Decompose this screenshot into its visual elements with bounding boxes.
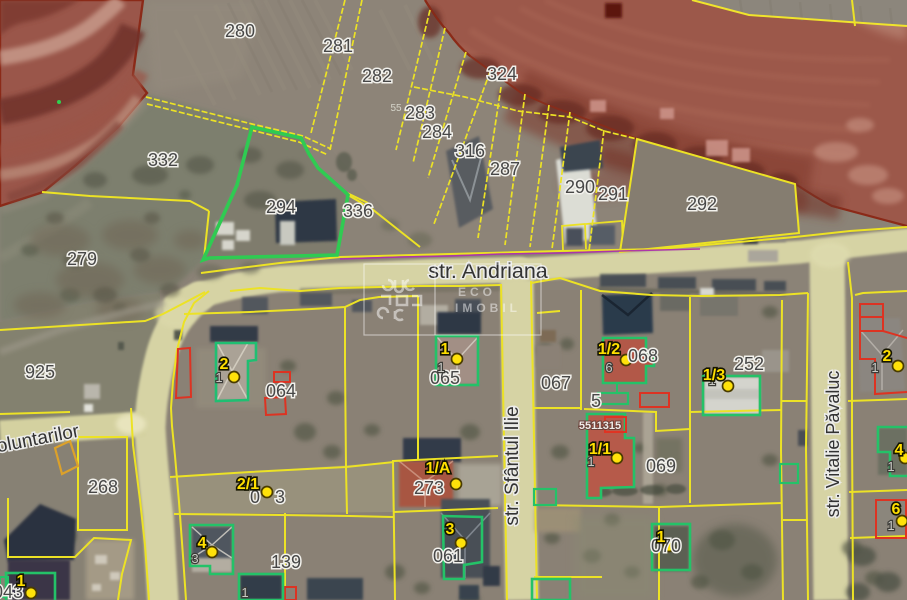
svg-text:069: 069 — [646, 456, 676, 476]
svg-text:55: 55 — [390, 103, 402, 114]
svg-text:1: 1 — [887, 459, 894, 474]
svg-text:268: 268 — [88, 477, 118, 497]
svg-text:291: 291 — [598, 184, 628, 204]
svg-text:1: 1 — [17, 573, 26, 590]
svg-text:139: 139 — [271, 552, 301, 572]
svg-text:061: 061 — [433, 546, 463, 566]
svg-text:281: 281 — [323, 36, 353, 56]
svg-text:ECO: ECO — [458, 285, 496, 299]
svg-text:064: 064 — [266, 381, 296, 401]
svg-text:2: 2 — [883, 348, 892, 365]
svg-text:284: 284 — [422, 122, 452, 142]
svg-text:1: 1 — [441, 341, 450, 358]
svg-text:294: 294 — [266, 197, 296, 217]
svg-text:6: 6 — [892, 501, 901, 518]
svg-text:065: 065 — [430, 368, 460, 388]
svg-text:336: 336 — [343, 201, 373, 221]
svg-text:070: 070 — [651, 536, 681, 556]
svg-text:067: 067 — [541, 373, 571, 393]
svg-text:316: 316 — [455, 141, 485, 161]
svg-text:283: 283 — [405, 103, 435, 123]
svg-text:279: 279 — [67, 249, 97, 269]
svg-text:1/3: 1/3 — [703, 367, 725, 384]
svg-text:2/1: 2/1 — [237, 476, 259, 493]
svg-text:4: 4 — [895, 442, 904, 459]
svg-text:287: 287 — [490, 159, 520, 179]
svg-text:290: 290 — [565, 177, 595, 197]
svg-text:2: 2 — [220, 356, 229, 373]
svg-text:5: 5 — [591, 391, 601, 411]
svg-text:str. Andriana: str. Andriana — [428, 259, 548, 283]
svg-text:925: 925 — [25, 362, 55, 382]
svg-text:4: 4 — [198, 535, 207, 552]
svg-text:282: 282 — [362, 66, 392, 86]
svg-text:3: 3 — [275, 487, 285, 507]
svg-text:252: 252 — [734, 354, 764, 374]
svg-text:1: 1 — [437, 360, 444, 375]
svg-text:5511315: 5511315 — [579, 420, 621, 432]
svg-text:1/1: 1/1 — [589, 441, 611, 458]
svg-text:280: 280 — [225, 21, 255, 41]
svg-text:1/A: 1/A — [426, 460, 451, 477]
svg-text:3: 3 — [191, 551, 198, 566]
svg-text:1/2: 1/2 — [598, 341, 620, 358]
svg-text:324: 324 — [487, 64, 517, 84]
svg-text:273: 273 — [414, 478, 444, 498]
svg-text:1: 1 — [887, 518, 894, 533]
svg-text:1: 1 — [241, 585, 248, 600]
svg-text:292: 292 — [687, 194, 717, 214]
svg-text:3: 3 — [446, 521, 455, 538]
svg-text:068: 068 — [628, 346, 658, 366]
svg-text:332: 332 — [148, 150, 178, 170]
svg-text:1: 1 — [871, 360, 878, 375]
svg-text:str. Vitalie Păvaluc: str. Vitalie Păvaluc — [823, 371, 843, 518]
svg-text:6: 6 — [605, 360, 612, 375]
svg-text:IMOBIL: IMOBIL — [455, 301, 521, 315]
svg-text:1: 1 — [657, 529, 666, 546]
svg-text:str. Sfântul Ilie: str. Sfântul Ilie — [502, 406, 523, 525]
